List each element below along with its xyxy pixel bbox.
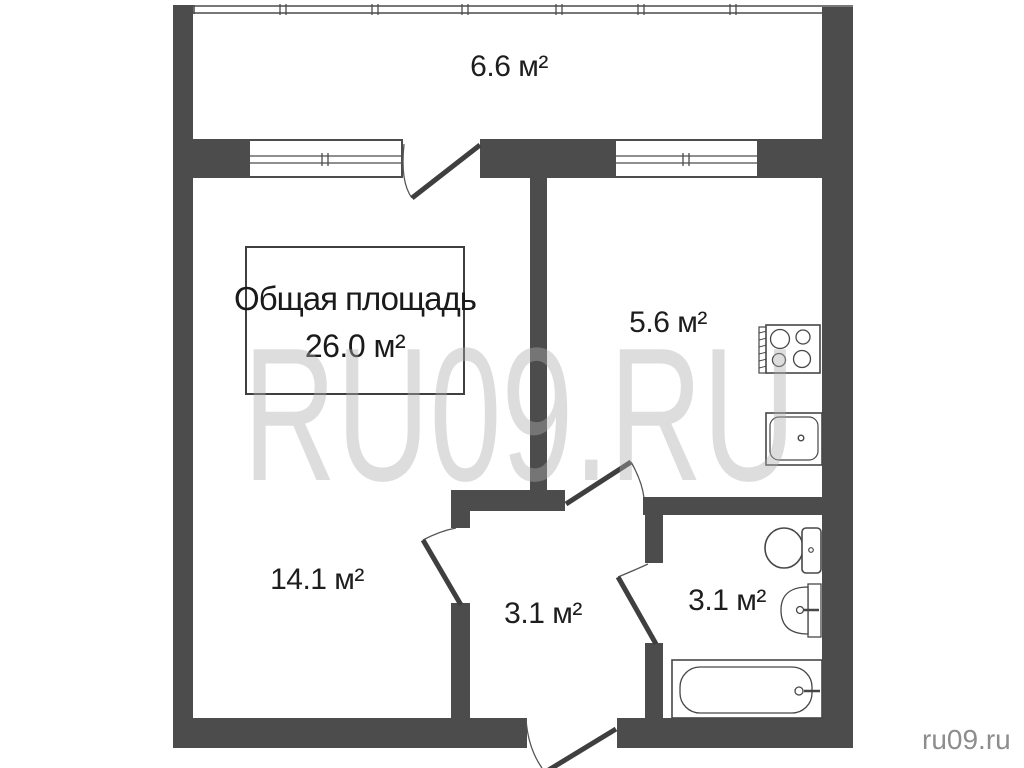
wall-bottom-left — [173, 718, 527, 748]
total-area-box: Общая площадь 26.0 м² — [245, 246, 465, 395]
wall-bottom-right — [617, 718, 853, 748]
balcony-door-icon — [403, 144, 480, 198]
kitchen-sink-icon — [766, 413, 822, 465]
floor-plan-drawing — [0, 0, 1024, 768]
wall-balcony-right — [758, 139, 822, 178]
site-watermark-label: ru09.ru — [922, 724, 1011, 756]
wall-balcony-mid — [480, 139, 615, 178]
wall-hallway-left-lower — [451, 603, 470, 718]
stove-icon — [759, 325, 820, 373]
toilet-icon — [765, 528, 821, 573]
balcony-area-label: 6.6 м² — [449, 50, 569, 84]
kitchen-area-label: 5.6 м² — [604, 306, 732, 340]
total-area-value: 26.0 м² — [305, 328, 405, 365]
balcony-railing — [193, 4, 853, 15]
kitchen-fixtures — [759, 325, 822, 465]
bathroom-door-icon — [618, 564, 656, 644]
doors — [403, 144, 656, 768]
window-kitchen-icon — [615, 140, 758, 177]
wall-bathroom-left-upper — [645, 497, 663, 563]
wall-left — [173, 5, 193, 748]
bathroom-fixtures — [672, 528, 822, 718]
wall-hallway-left-upper — [451, 490, 470, 528]
kitchen-door-icon — [566, 462, 644, 504]
living-room-area-label: 14.1 м² — [237, 563, 397, 597]
bathroom-area-label: 3.1 м² — [667, 584, 787, 618]
living-room-door-icon — [423, 528, 461, 605]
wall-right — [822, 7, 853, 748]
entrance-door-icon — [526, 719, 616, 768]
bathtub-icon — [672, 660, 822, 718]
total-area-title: Общая площадь — [234, 280, 476, 318]
washbasin-icon — [781, 584, 821, 637]
hallway-area-label: 3.1 м² — [483, 597, 603, 631]
wall-living-kitchen — [530, 178, 547, 493]
floor-plan: 6.6 м² 5.6 м² 14.1 м² 3.1 м² 3.1 м² Обща… — [0, 0, 1024, 768]
window-living-icon — [249, 140, 402, 177]
wall-bathroom-left-lower — [645, 643, 663, 718]
wall-bathroom-top — [643, 497, 822, 515]
wall-balcony-left — [193, 139, 249, 178]
